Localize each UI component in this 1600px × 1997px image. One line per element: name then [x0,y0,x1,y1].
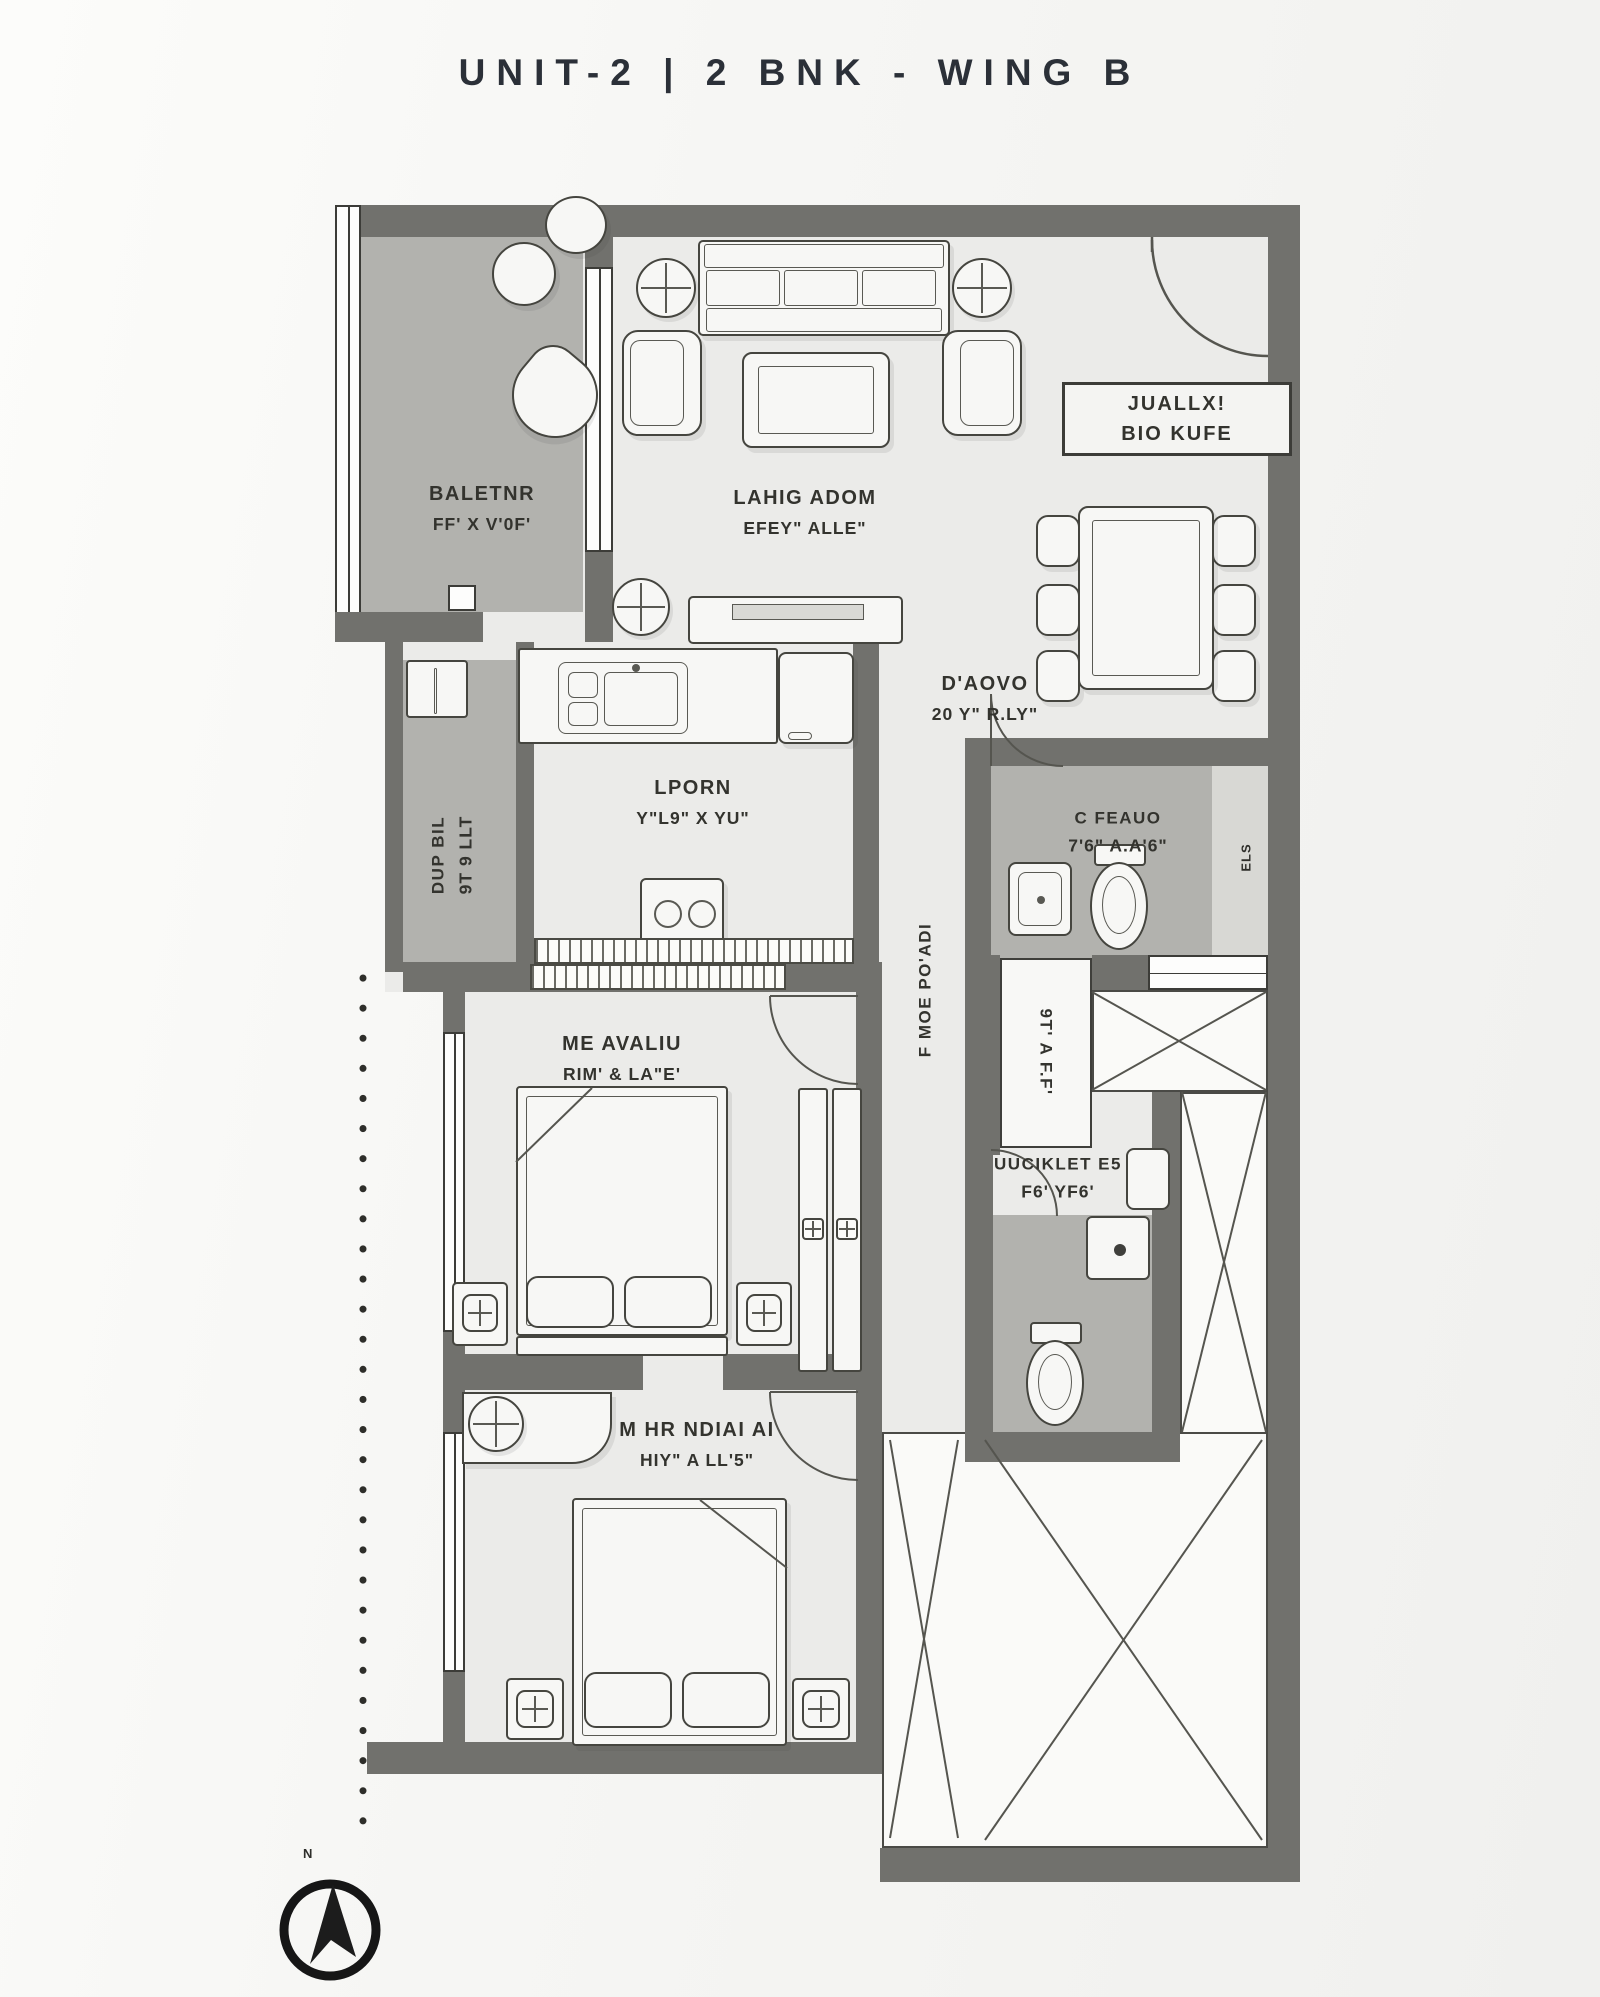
dining-table-top [1092,520,1200,676]
dining-chair [1036,584,1080,636]
bedroom2-dim: HIY" A LL'5" [619,1446,774,1474]
dining-table [1078,506,1214,690]
room-label-niche: 9T' A F.F' [1032,1009,1059,1096]
foyer-name-plate: JUALLX! BIO KUFE [1062,382,1292,456]
tv [732,604,864,620]
round-side-table-right [952,258,1012,318]
toilet1-top-wall [965,738,1300,766]
dining-chair [1212,650,1256,702]
sofa-back [704,244,944,268]
washbasin-1 [1008,862,1072,936]
shower-drain-icon [1114,1244,1126,1256]
wc2-seat [1038,1354,1072,1410]
bedroom1-wall-cap-a [443,992,465,1032]
sink-basin [604,672,678,726]
toilet2-left-wall [965,1148,993,1435]
bedroom1-name: ME AVALIU [562,1028,682,1060]
niche-name: 9T' A F.F' [1032,1009,1059,1096]
toilet2-bottom-wall [965,1432,1180,1462]
table-lamp-icon [462,1294,498,1332]
table-lamp-icon [746,1294,782,1332]
bedroom2-wall-cap-b [443,1672,465,1744]
bed-2 [572,1498,787,1746]
burner-icon [688,900,716,928]
sofa-cushion [784,270,858,306]
pillow [624,1276,712,1328]
room-label-bedroom1: ME AVALIU RIM' & LA"E' [562,1028,682,1088]
wardrobe-handle-icon [836,1218,858,1240]
floorplan-page: UNIT-2 | 2 BNK - WING B [0,0,1600,1997]
armchair-cushion [960,340,1014,426]
foyer-name: JUALLX! [1065,389,1289,419]
wc2-bowl [1026,1340,1084,1426]
ceiling-fan-icon [468,1396,524,1452]
room-label-toilet2: UUCIKLET E5 F6' YF6' [994,1150,1122,1205]
pillow [584,1672,672,1728]
armchair-cushion [630,340,684,426]
balcony-table [492,242,556,306]
dry-balcony-dim: 9T 9 LLT [452,816,480,895]
compass-circle [284,1884,376,1976]
room-label-dry-balcony: DUP BIL 9T 9 LLT [424,816,479,895]
dining-name: D'AOVO [932,668,1038,700]
kitchen-right-wall [853,642,879,972]
balcony-dim: FF' X V'0F' [429,510,535,538]
wardrobe-handle-icon [802,1218,824,1240]
sofa-seat [706,308,942,332]
toilet1-left-wall [965,738,991,960]
dry-balcony-name: DUP BIL [424,816,451,895]
room-label-balcony: BALETNR FF' X V'0F' [429,478,535,538]
sink-bowl-small [568,672,598,698]
pillow [526,1276,614,1328]
balcony-small-window [448,585,476,611]
room-label-bedroom2: M HR NDIAI AI HIY" A LL'5" [619,1414,774,1474]
washing-machine [406,660,468,718]
balcony-wall-bottom [335,612,483,642]
room-label-kitchen: LPORN Y"L9" X YU" [636,772,749,832]
toilet2-shaft-wall [1152,1092,1180,1435]
sofa-cushion [862,270,936,306]
dining-chair [1036,515,1080,567]
burner-icon [654,900,682,928]
armchair-left [622,330,702,436]
sofa [698,240,950,336]
passage-name: F MOE PO'ADI [911,923,938,1057]
balcony-window [335,205,361,642]
dining-chair [1212,584,1256,636]
sliding-door-track [530,964,786,990]
wc1-bowl [1090,862,1148,950]
bedroom-divider-a [443,1354,643,1390]
bed-1-headboard [516,1336,728,1356]
wall-bottom-left [367,1742,882,1774]
bedroom2-window [443,1432,465,1672]
living-name: LAHIG ADOM [733,482,876,514]
table-lamp-icon [516,1690,554,1728]
shaft-top-wall [1092,955,1148,990]
fridge-handle [788,732,812,740]
toilet2-name: UUCIKLET E5 [994,1150,1122,1177]
pillow [682,1672,770,1728]
bedroom1-dim: RIM' & LA"E' [562,1060,682,1088]
room-label-living: LAHIG ADOM EFEY" ALLE" [733,482,876,542]
wall-bottom-right [880,1848,1300,1882]
shower-tray [1086,1216,1150,1280]
sink-bowl-small [568,702,598,726]
foyer-dim: BIO KUFE [1065,419,1289,449]
balcony-divider-bottom [585,552,613,642]
shaft-bottom [882,1432,1268,1848]
bedroom2-name: M HR NDIAI AI [619,1414,774,1446]
tv-console [688,596,903,644]
room-label-toilet1: C FEAUO 7'6" A.A'6" [1068,804,1167,859]
wall-right [1268,205,1300,1882]
room-label-dining: D'AOVO 20 Y" R.LY" [932,668,1038,728]
niche-left-wall [965,955,1000,1155]
kitchen-counter [518,648,778,744]
coffee-table-top [758,366,874,434]
shaft-upper [1092,990,1268,1092]
round-side-table-left [636,258,696,318]
dining-chair [1212,515,1256,567]
toilet1-name: C FEAUO [1068,804,1167,831]
kitchen-dim: Y"L9" X YU" [636,804,749,832]
wall-left-mid [385,642,403,972]
wall-top [335,205,1300,237]
dining-chair [1036,650,1080,702]
table-lamp-icon [802,1690,840,1728]
kitchen-name: LPORN [636,772,749,804]
sofa-cushion [706,270,780,306]
compass-north-label: N [303,1846,313,1861]
bedroom2-right-wall [856,1390,882,1744]
shaft-window [1148,955,1268,990]
refrigerator [778,652,854,744]
dining-dim: 20 Y" R.LY" [932,700,1038,728]
living-dim: EFEY" ALLE" [733,514,876,542]
north-arrow [310,1884,356,1964]
balcony-chair-top [545,196,607,254]
room-label-passage: F MOE PO'ADI [911,923,938,1057]
toilet2-door-panel [1126,1148,1170,1210]
page-title: UNIT-2 | 2 BNK - WING B [0,52,1600,94]
shaft-strip [1180,1092,1268,1435]
washer-divider [434,668,437,714]
toilet1-dim: 7'6" A.A'6" [1068,832,1167,860]
faucet-icon [632,664,640,672]
floor-lamp-icon [612,578,670,636]
drain-icon [1037,896,1045,904]
armchair-right [942,330,1022,436]
bed-1 [516,1086,728,1336]
kitchen-platform [534,938,854,964]
toilet2-dim: F6' YF6' [994,1178,1122,1206]
vent-label: ELS [1239,843,1254,871]
balcony-name: BALETNR [429,478,535,510]
wc1-seat [1102,876,1136,934]
coffee-table [742,352,890,448]
